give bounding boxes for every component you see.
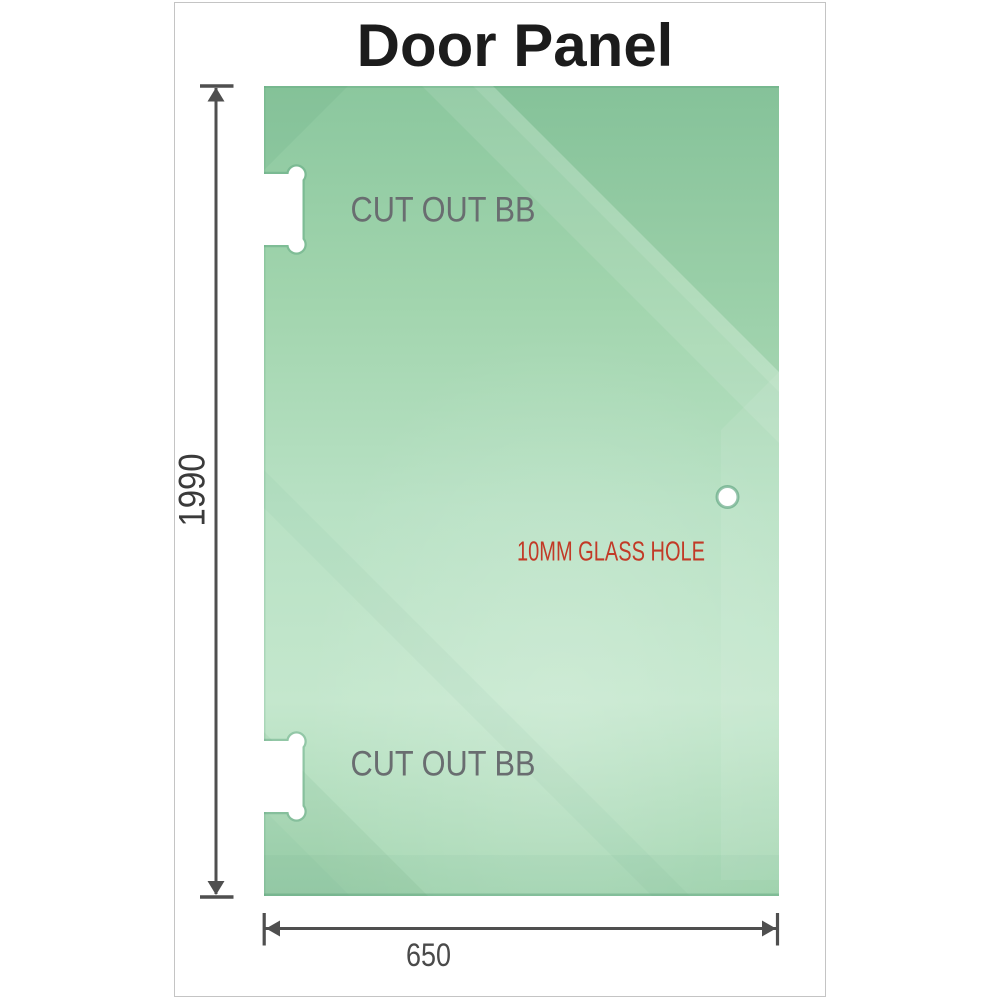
svg-text:1990: 1990 — [172, 454, 213, 527]
svg-text:CUT OUT BB: CUT OUT BB — [351, 190, 536, 230]
svg-text:CUT OUT BB: CUT OUT BB — [351, 744, 536, 784]
svg-text:Door Panel: Door Panel — [357, 12, 674, 79]
svg-text:650: 650 — [406, 937, 451, 973]
svg-text:10MM GLASS HOLE: 10MM GLASS HOLE — [517, 536, 705, 567]
